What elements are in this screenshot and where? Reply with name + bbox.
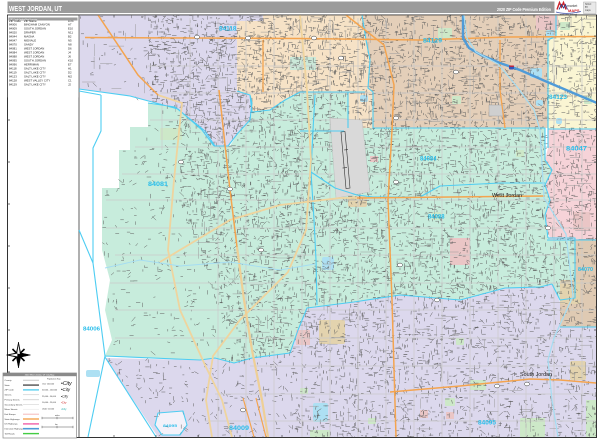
svg-text:Secondary Streets: Secondary Streets — [5, 403, 24, 406]
svg-text:•City: •City — [61, 387, 71, 392]
svg-text:84088: 84088 — [428, 214, 445, 221]
svg-text:Exit Ramps: Exit Ramps — [5, 413, 17, 416]
svg-text:84009: 84009 — [229, 425, 249, 432]
svg-text:2020 West Jordan, UT City Map: 2020 West Jordan, UT City Map — [25, 374, 55, 377]
svg-text:Minor Streets: Minor Streets — [5, 408, 19, 411]
svg-text:SOLD: SOLD — [585, 4, 592, 6]
svg-text:84095: 84095 — [478, 420, 496, 427]
svg-text:84084: 84084 — [420, 156, 437, 163]
svg-text:84095: 84095 — [163, 423, 178, 428]
svg-text:WEST JORDAN, UT: WEST JORDAN, UT — [9, 4, 62, 13]
svg-text:US Highways: US Highways — [5, 424, 19, 426]
svg-text:Primary Streets: Primary Streets — [5, 398, 21, 401]
svg-text:South Jordan: South Jordan — [520, 372, 552, 378]
svg-text:Under 10,000: Under 10,000 — [42, 408, 55, 410]
svg-text:County: County — [5, 379, 13, 382]
svg-text:84129: 84129 — [423, 38, 442, 45]
svg-text:50,000 - 100,000: 50,000 - 100,000 — [42, 390, 58, 392]
svg-text:•City: •City — [61, 407, 67, 411]
svg-text:ZIP Code: ZIP Code — [5, 390, 15, 392]
svg-text:84070: 84070 — [578, 267, 593, 273]
svg-text:84081: 84081 — [148, 181, 168, 188]
svg-text:maps: maps — [585, 10, 591, 12]
svg-text:10,000 - 25,000: 10,000 - 25,000 — [42, 402, 57, 404]
svg-text:State: State — [5, 384, 11, 387]
svg-text:84047: 84047 — [566, 146, 587, 153]
svg-text:J2: J2 — [68, 83, 71, 87]
svg-text:Interstate Highways: Interstate Highways — [5, 428, 25, 431]
svg-text:•City: •City — [61, 381, 72, 387]
svg-text:Population Key: Population Key — [47, 378, 60, 381]
svg-text:Streets: Streets — [5, 394, 13, 397]
svg-text:2020 ZIP Code Premium Edition: 2020 ZIP Code Premium Edition — [497, 7, 551, 12]
svg-text:Over 100,000: Over 100,000 — [42, 384, 55, 386]
svg-text:84129: 84129 — [9, 83, 17, 87]
svg-text:Toll Roads: Toll Roads — [5, 433, 16, 435]
svg-text:miles: miles — [55, 415, 60, 417]
svg-text:West Jordan: West Jordan — [492, 193, 522, 199]
svg-text:SALT LAKE CITY: SALT LAKE CITY — [24, 83, 46, 87]
svg-text:84118: 84118 — [219, 26, 237, 33]
svg-text:•City: •City — [61, 401, 67, 405]
svg-text:BY: BY — [585, 7, 589, 9]
svg-text:km: km — [55, 424, 58, 426]
svg-text:State Highways: State Highways — [5, 418, 21, 421]
svg-text:25,000 - 50,000: 25,000 - 50,000 — [42, 396, 57, 398]
svg-text:84123: 84123 — [549, 94, 567, 101]
svg-text:84006: 84006 — [83, 327, 101, 333]
svg-text:•City: •City — [61, 394, 68, 398]
